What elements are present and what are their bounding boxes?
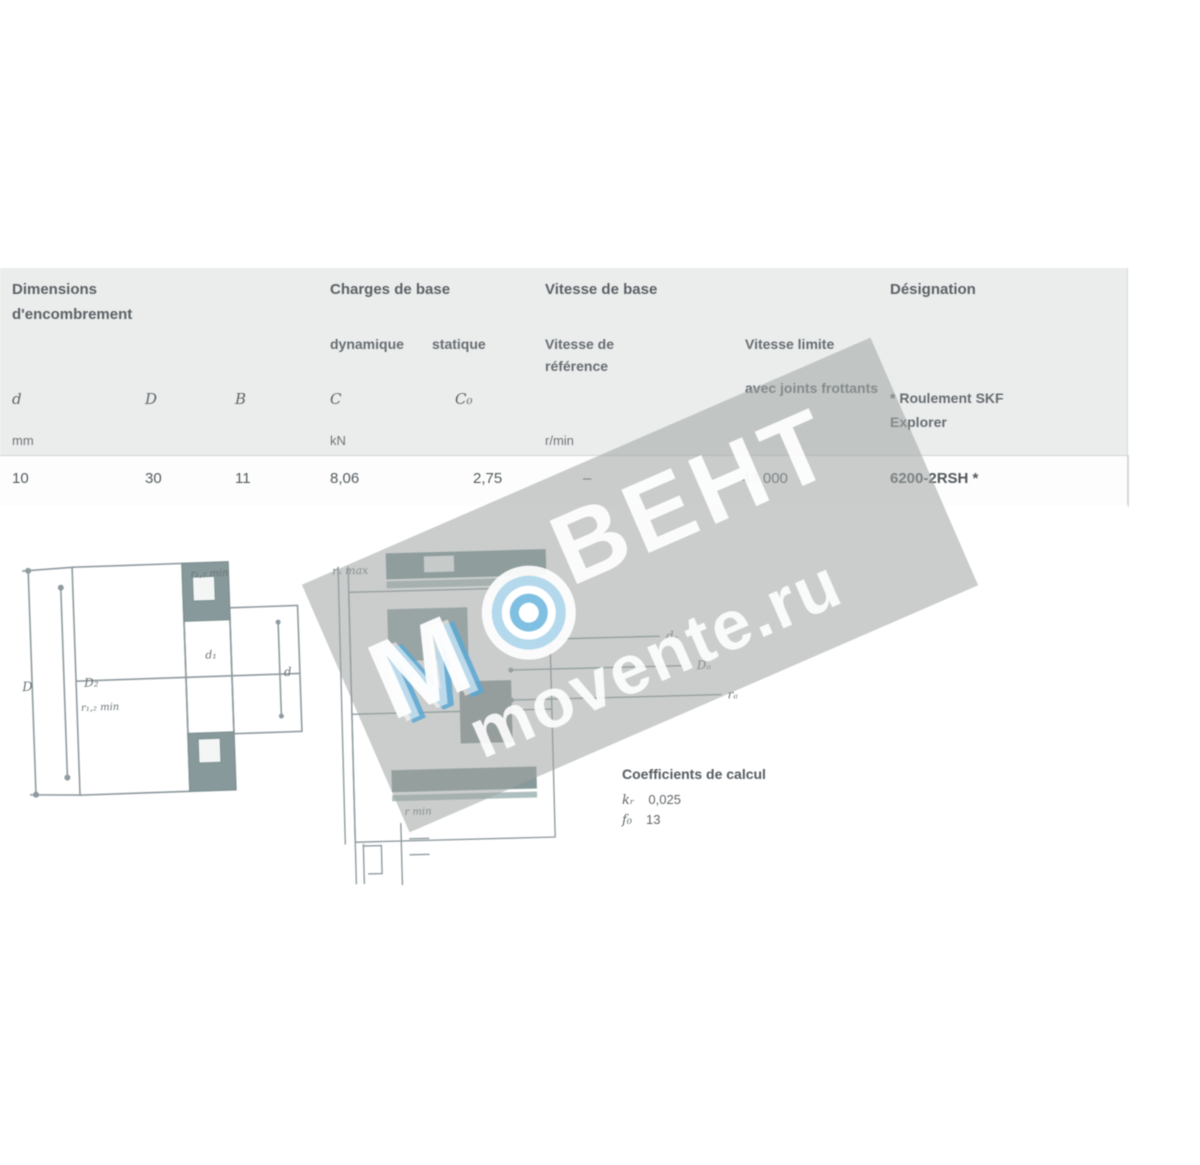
table-right-border — [1128, 455, 1129, 507]
dim-label-r12: r₁,₂ min — [81, 702, 120, 714]
col-loads-static: statique — [432, 336, 486, 352]
speed-lim-line1: Vitesse limite — [745, 336, 834, 352]
cell-C0: 2,75 — [473, 470, 502, 487]
calc-f0-symbol: f₀ — [622, 813, 632, 828]
unit-rmin: r/min — [545, 433, 574, 448]
speed-ref-line2: référence — [545, 358, 608, 374]
col-speeds-title: Vitesse de base — [545, 281, 657, 298]
dim-label-D: D — [21, 680, 34, 695]
col-dimensions-sub: d'encombrement — [12, 306, 132, 323]
calc-f0-value: 13 — [646, 812, 660, 827]
col-dimensions-title: Dimensions — [12, 281, 97, 298]
calc-title: Coefficients de calcul — [622, 766, 766, 782]
cell-D: 30 — [145, 470, 162, 487]
symbol-d: d — [12, 390, 22, 408]
dim-label-d1: d₁ — [205, 648, 217, 661]
calc-kr-symbol: kᵣ — [622, 793, 634, 808]
dim-label-r12-top: r₁,₂ min — [190, 568, 229, 580]
speed-ref-line1: Vitesse de — [545, 336, 614, 352]
symbol-D: D — [145, 390, 157, 408]
unit-mm: mm — [12, 433, 34, 448]
unit-kn: kN — [330, 433, 346, 448]
bearing-section-drawing: D D₂ r₁,₂ min d₁ d r₁,₂ min — [14, 543, 323, 813]
symbol-C: C — [330, 390, 341, 408]
catalog-page: Dimensions d'encombrement Charges de bas… — [0, 0, 1200, 1165]
calc-kr: kᵣ0,025 — [622, 792, 766, 808]
symbol-B: B — [235, 390, 246, 408]
calculation-factors: Coefficients de calcul kᵣ0,025 f₀13 — [622, 766, 766, 828]
dim-label-D2: D₂ — [83, 675, 99, 690]
cell-d: 10 — [12, 470, 29, 487]
scanned-content: Dimensions d'encombrement Charges de bas… — [0, 0, 1200, 1165]
calc-f0: f₀13 — [622, 812, 766, 828]
col-loads-dynamic: dynamique — [330, 336, 404, 352]
dim-label-d: d — [284, 665, 292, 679]
table-header: Dimensions d'encombrement Charges de bas… — [0, 268, 1128, 455]
cell-C: 8,06 — [330, 470, 359, 487]
col-loads-title: Charges de base — [330, 281, 450, 298]
designation-note1: * Roulement SKF — [890, 390, 1004, 406]
col-designation-title: Désignation — [890, 281, 976, 298]
symbol-C0: C₀ — [455, 390, 473, 408]
cell-B: 11 — [235, 470, 251, 487]
calc-kr-value: 0,025 — [648, 792, 681, 807]
